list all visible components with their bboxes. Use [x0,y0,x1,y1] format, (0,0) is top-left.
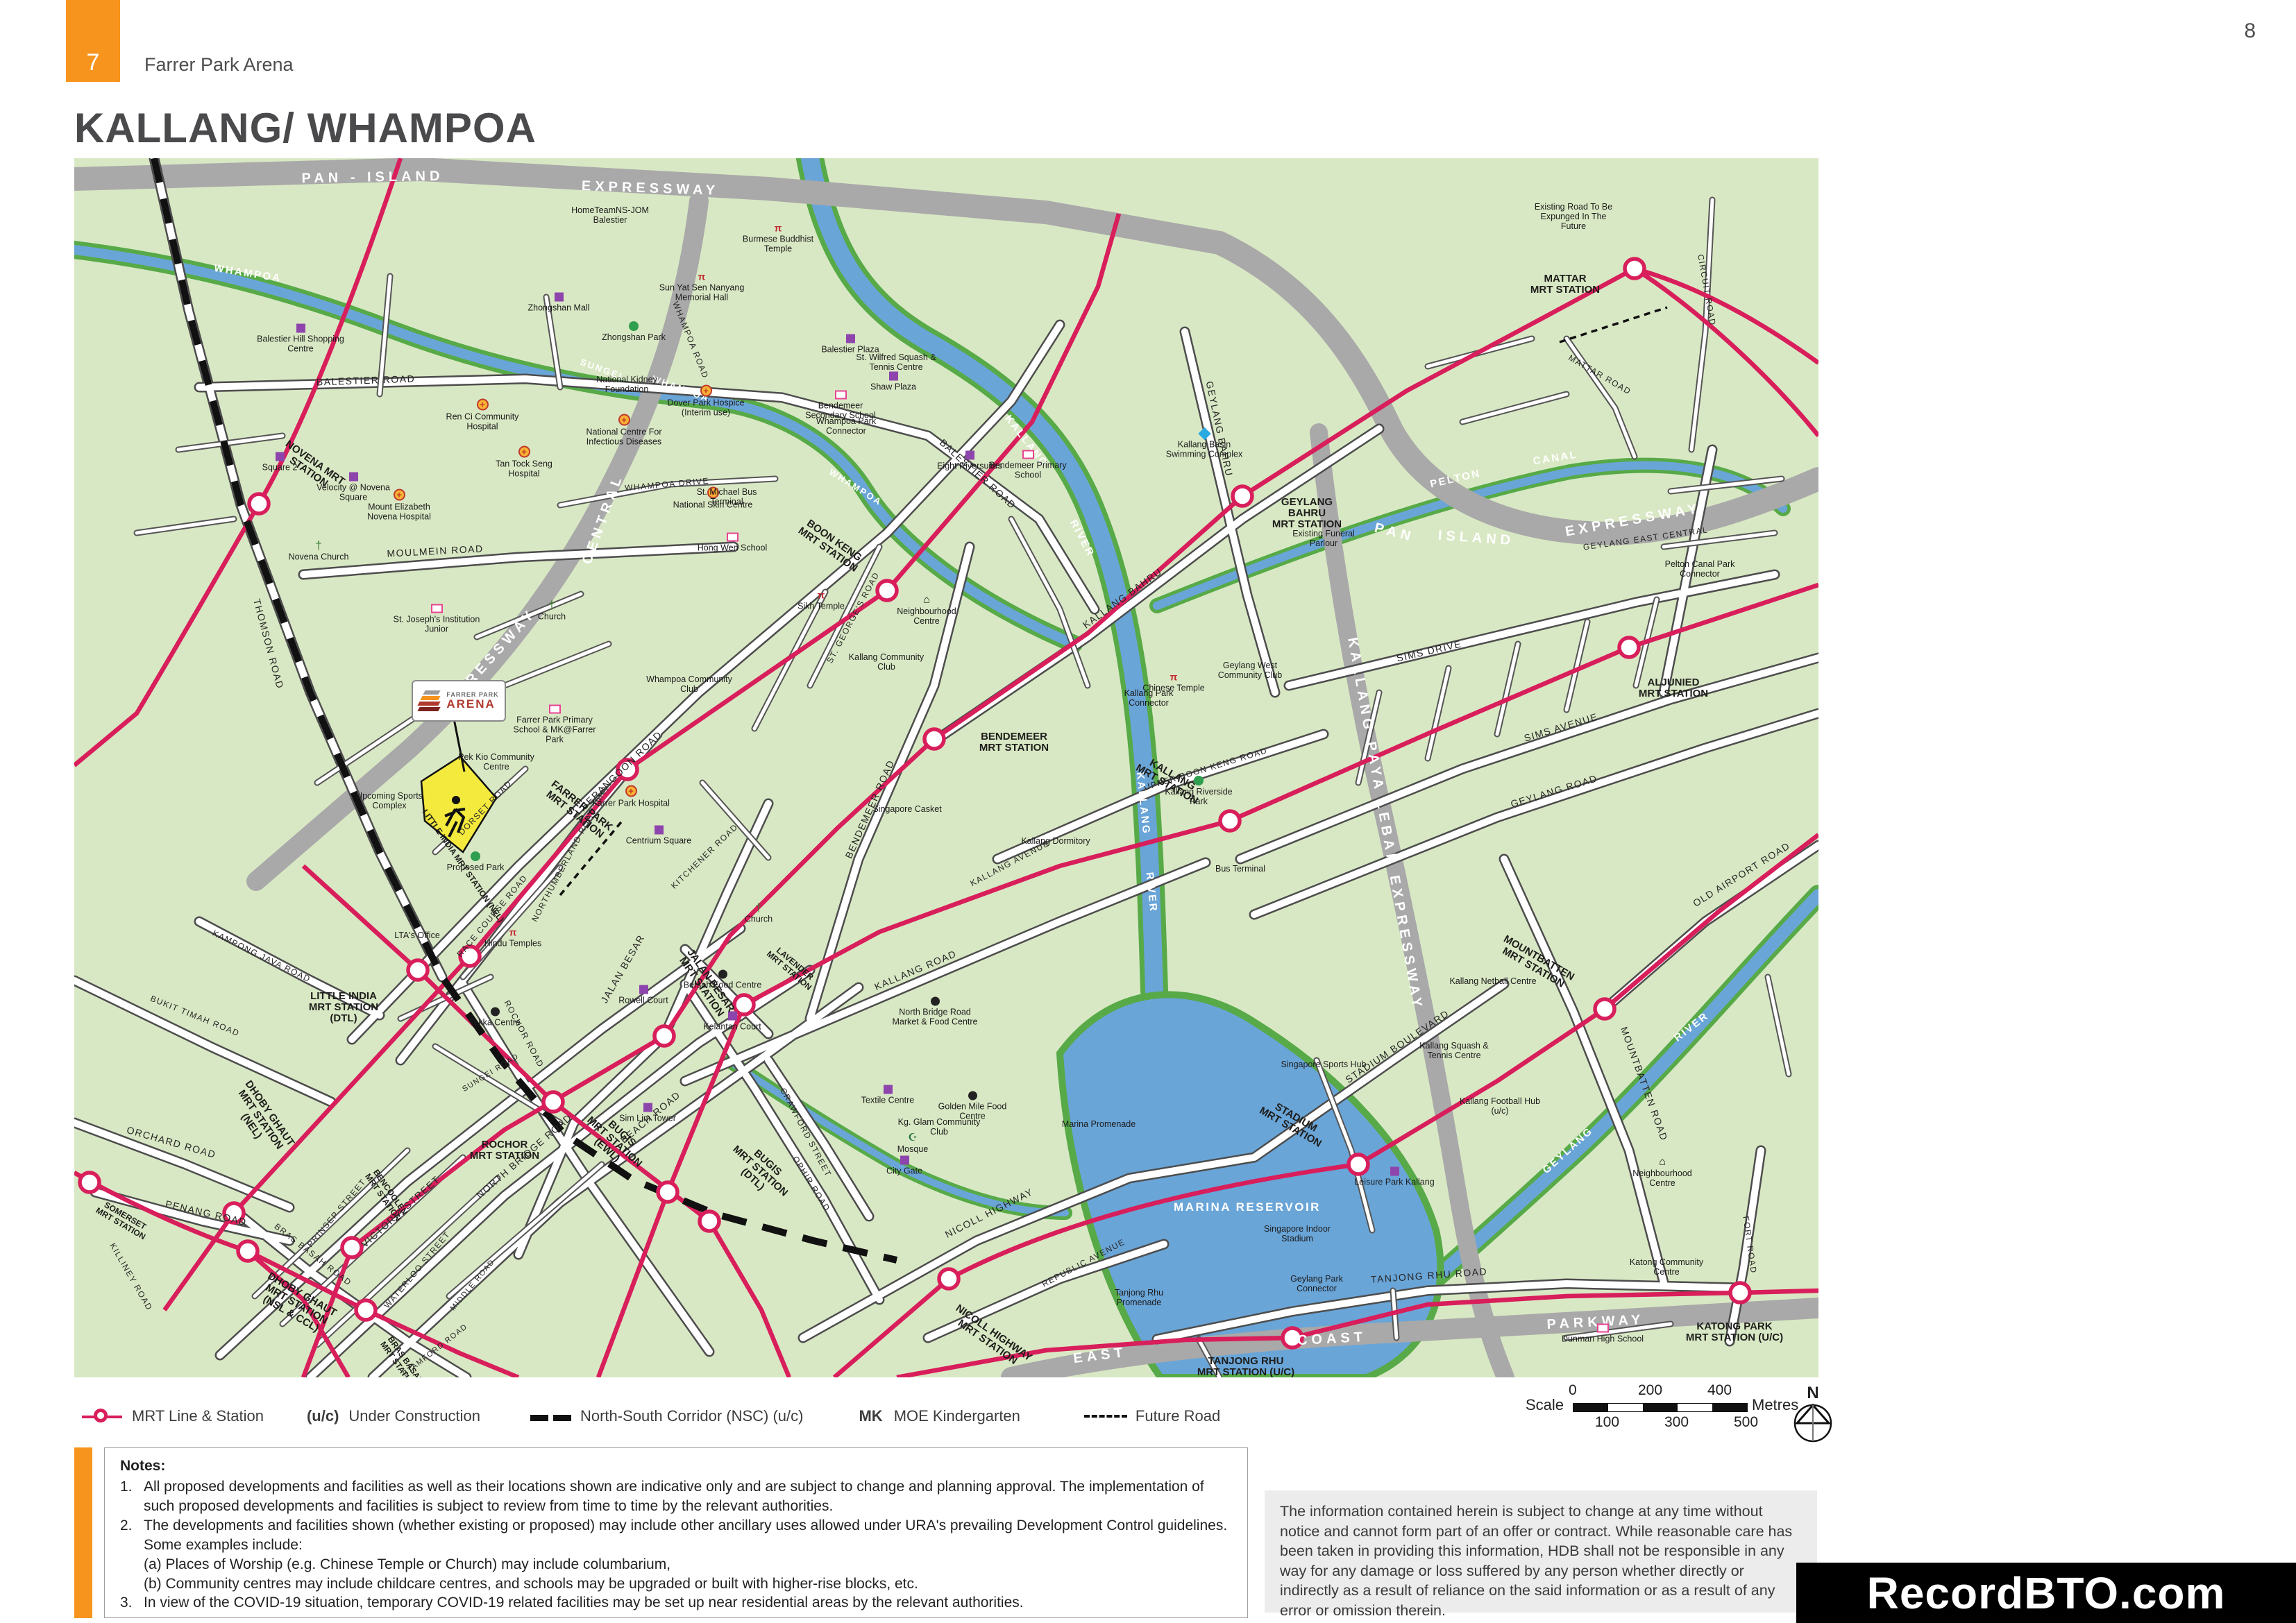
landmark: +Ren Ci Community Hospital [439,399,526,432]
landmark: †Church [715,903,802,924]
landmark: Tanjong Rhu Promenade [1095,1288,1183,1307]
landmark-label: Sim Lim Tower [619,1114,676,1123]
road-label: THOMSON ROAD [251,597,286,690]
landmark-label: National Kidney Foundation [583,375,670,394]
mrt-station-label-nicoll-highway: NICOLL HIGHWAYMRT STATION [947,1303,1034,1373]
landmark-label: Kallang Squash & Tennis Centre [1410,1041,1498,1060]
building-icon [643,1103,652,1112]
landmark: Kallang Dormitory [1012,836,1099,846]
road-label: CRAWFORD STREET [778,1086,834,1178]
landmark-label: Leisure Park Kallang [1354,1178,1434,1187]
landmark-label: Sikh Temple [797,602,845,611]
landmark: Kallang Park Connector [1105,688,1192,708]
landmark-label: Singapore Sports Hub [1281,1060,1367,1069]
temple-icon: π [509,928,517,937]
landmark-label: Kallang Netball Centre [1449,976,1536,986]
water-label: CANAL [1533,449,1579,468]
map-labels-layer: NOVENA MRTSTATIONMATTARMRT STATIONBOON K… [74,158,1818,1377]
landmark-label: Farrer Park Primary School & MK@Farrer P… [511,715,598,745]
landmark: †Novena Church [275,541,362,562]
water-label: RIVER [1067,518,1097,559]
water-label: WHAMPOA [213,262,282,284]
legend-nsc-label: North-South Corridor (NSC) (u/c) [580,1407,804,1425]
church-icon: † [548,600,555,611]
landmark: City Gate [861,1156,948,1176]
landmark-label: Pek Kio Community Centre [453,752,540,772]
landmark: Leisure Park Kallang [1351,1167,1438,1187]
notes-accent-bar [74,1447,92,1618]
landmark: Singapore Indoor Stadium [1253,1224,1341,1243]
landmark-label: Bus Terminal [1215,864,1265,874]
landmark: Tekka Centre [451,1008,539,1028]
landmark: St. Wilfred Squash & Tennis Centre [852,352,940,372]
note-number: 1. [120,1477,144,1516]
landmark: Textile Centre [844,1085,931,1105]
landmark: Farrer Park Primary School & MK@Farrer P… [511,705,598,745]
landmark: St. Michael Bus Terminal [683,487,770,507]
building-icon [555,293,564,302]
landmark: Marina Promenade [1055,1119,1142,1129]
road-label: REPUBLIC AVENUE [1040,1237,1127,1289]
landmark-label: Kallang Basin Swimming Complex [1160,440,1248,459]
water-label: WHAMPOA [827,466,884,507]
note-item: 1.All proposed developments and faciliti… [120,1477,1232,1516]
scale-tick: 100 [1595,1414,1619,1431]
mrt-station-label-mattar: MATTARMRT STATION [1530,273,1600,296]
hospital-icon: + [518,446,530,458]
road-label: SUNGEI ROAD [461,1052,521,1094]
road-label: NICOLL HIGHWAY [943,1186,1035,1240]
water-label: RIVER [1672,1010,1711,1044]
landmark: Whampoa Community Club [645,674,733,694]
landmark-label: Geylang West Community Club [1206,661,1294,680]
road-label: ST. GEORGE'S ROAD [825,570,881,665]
notes-title: Notes: [120,1456,1232,1476]
notes-list: 1.All proposed developments and faciliti… [120,1477,1232,1613]
school-icon [431,604,443,613]
water-label: PELTON [1429,467,1482,490]
road-label: WATERLOO STREET [382,1230,452,1311]
landmark: ⌂Neighbourhood Centre [1619,1157,1706,1188]
north-arrow-icon [1793,1403,1833,1443]
mrt-station-label-dhoby-ghaut-nel: DHOBY GHAUTMRT STATION(NEL) [224,1079,296,1162]
landmark-label: Marina Promenade [1062,1119,1136,1129]
road-label: MOUNTBATTEN ROAD [1619,1026,1670,1143]
road-label: CIRCUIT ROAD [1696,253,1718,326]
scale-tick: 400 [1707,1382,1732,1399]
farrer-park-arena-logo [419,690,442,711]
landmark-label: Kallang Park Connector [1105,688,1192,708]
water-label: GEYLANG [1540,1125,1596,1176]
scale-tick: 200 [1638,1382,1662,1399]
landmark-label: Existing Funeral Parlour [1280,529,1367,548]
landmark-label: Church [538,612,566,622]
landmark-label: National Centre For Infectious Diseases [580,427,668,447]
landmark: Pelton Canal Park Connector [1656,559,1744,579]
farrer-park-arena-callout: FARRER PARKARENA [412,680,506,722]
landmark-label: Dover Park Hospice (Interim use) [662,398,750,418]
food-centre-icon [968,1091,977,1101]
landmark: Kallang Community Club [843,652,930,672]
landmark: Zhongshan Mall [515,293,602,313]
disclaimer-box: The information contained herein is subj… [1265,1490,1817,1613]
road-label: GEYLANG ROAD [1509,772,1598,809]
landmark-label: Kallang Football Hub (u/c) [1456,1096,1544,1116]
landmark: Balestier Plaza [807,334,894,355]
mrt-station-label-rochor: ROCHORMRT STATION [470,1139,539,1162]
scale-bar-segments [1573,1403,1748,1412]
landmark: +National Centre For Infectious Diseases [580,414,668,447]
legend-mk-label: MOE Kindergarten [894,1407,1020,1425]
expressway-label: ISLAND [1437,528,1515,550]
road-label: KILLINEY ROAD [108,1241,154,1312]
watermark: RecordBTO.com [1796,1563,2296,1623]
road-label: OLD AIRPORT ROAD [1691,840,1792,908]
note-number: 3. [120,1593,144,1613]
nsc-legend-icon [530,1407,576,1425]
north-arrow: N [1791,1384,1835,1447]
landmark: Kallang Squash & Tennis Centre [1410,1041,1498,1060]
future-road-legend-icon [1084,1415,1127,1418]
landmark: Shaw Plaza [850,372,937,392]
road-label: ORCHARD ROAD [126,1124,217,1160]
note-item: 2.The developments and facilities shown … [120,1516,1232,1594]
landmark-label: Hindu Temples [484,939,541,949]
mrt-station-label-bras-basah: BRAS BASAHMRT STATION [378,1335,425,1377]
landmark: +Tan Tock Seng Hospital [480,446,568,479]
landmark: Centrium Square [615,826,702,846]
section-badge: 7 [66,0,120,82]
temple-icon: π [1170,673,1178,682]
landmark-label: Singapore Casket [872,804,941,814]
road-label: BUKIT TIMAH ROAD [149,994,242,1039]
mosque-icon: ☪ [908,1133,917,1143]
mrt-station-label-little-india-dtl: LITTLE INDIAMRT STATION(DTL) [309,991,378,1024]
scale-tick: 0 [1569,1382,1577,1399]
scale-tick: 500 [1734,1414,1758,1431]
mrt-station-label-katong-park: KATONG PARKMRT STATION (U/C) [1686,1321,1783,1343]
landmark: +Dover Park Hospice (Interim use) [662,385,750,418]
water-label: MARINA RESERVOIR [1174,1200,1321,1214]
landmark: Kelantan Court [689,1012,776,1032]
road-label: BALESTIER ROAD [316,373,416,388]
landmark-label: Tan Tock Seng Hospital [480,459,568,479]
landmark-label: St. Wilfred Squash & Tennis Centre [852,352,940,372]
landmark: πHindu Temples [469,928,557,949]
landmark-label: Zhongshan Park [602,332,666,342]
mrt-station-label-bendemeer: BENDEMEERMRT STATION [979,731,1049,754]
food-centre-icon [718,970,727,979]
landmark: Pek Kio Community Centre [453,752,540,772]
mrt-station-legend-icon [82,1408,122,1425]
mrt-station-label-bencoolen: BENCOOLENMRT STATION [363,1167,410,1223]
page-number: 8 [2244,19,2256,43]
landmark-label: Neighbourhood Centre [883,606,970,626]
landmark: Kallang Netball Centre [1449,976,1537,986]
landmark: Sim Lim Tower [604,1103,691,1123]
landmark: Hong Wen School [689,533,776,553]
building-icon [655,826,664,835]
note-item: 3.In view of the COVID-19 situation, tem… [120,1593,1232,1613]
landmark-label: Katong Community Centre [1623,1257,1710,1277]
mrt-station-label-dhoby-ghaut-nsl-ccl: DHOBY GHAUTMRT STATION(NSL & CCL) [255,1271,339,1338]
water-label: RIVER [1143,872,1159,913]
kallang-whampoa-map[interactable]: NOVENA MRTSTATIONMATTARMRT STATIONBOON K… [74,158,1818,1377]
page-title: KALLANG/ WHAMPOA [74,104,537,152]
note-text: In view of the COVID-19 situation, tempo… [144,1593,1024,1613]
notes-box: Notes: 1.All proposed developments and f… [104,1447,1248,1618]
hospital-icon: + [618,414,630,426]
park-icon [471,851,480,861]
landmark-label: Tekka Centre [469,1018,521,1028]
church-icon: † [315,541,321,551]
landmark-label: Novena Church [289,552,349,562]
landmark: National Kidney Foundation [583,375,670,394]
landmark: Kallang Football Hub (u/c) [1456,1096,1544,1116]
school-icon [1597,1324,1609,1333]
landmark: Geylang West Community Club [1206,661,1294,680]
site-label: Upcoming Sports Complex [353,791,425,811]
landmark: πSun Yat Sen Nanyang Memorial Hall [658,273,745,303]
landmark-label: Neighbourhood Centre [1619,1169,1706,1188]
mrt-station-label-bugis-dtl: BUGISMRT STATION(DTL) [723,1136,797,1207]
arena-brand-bottom: ARENA [446,698,498,710]
landmark: +Farrer Park Hospital [587,785,675,808]
expressway-label: KALLANG-PAYA LEBAR EXPRESSWAY [1344,636,1426,1012]
road-label: DORSET ROAD [457,779,514,838]
road-label: KALLANG BAHRU [1081,566,1164,630]
school-icon [835,391,847,400]
landmark: St. Joseph's Institution Junior [393,604,480,634]
landmark: Whampoa Park Connector [802,416,890,436]
landmark-label: Ren Ci Community Hospital [439,412,526,432]
north-label: N [1791,1384,1835,1403]
landmark-label: LTA's Office [394,931,440,940]
note-number: 2. [120,1516,144,1594]
temple-icon: π [818,591,825,600]
scale-tick: 300 [1664,1414,1689,1431]
landmark: Kallang Basin Swimming Complex [1160,430,1248,459]
road-label: KALLANG ROAD [872,948,958,992]
landmark-label: Tanjong Rhu Promenade [1095,1288,1183,1307]
scale-label: Scale [1526,1396,1564,1414]
landmark-label: Centrium Square [626,836,692,846]
landmark-label: St. Michael Bus Terminal [683,487,770,507]
landmark-label: Burmese Buddhist Temple [734,235,822,254]
hospital-icon: + [625,785,637,797]
landmark: Zhongshan Park [590,321,677,342]
landmark: Existing Road To Be Expunged In The Futu… [1530,202,1617,231]
park-icon [629,321,639,331]
mrt-station-label-stadium: STADIUMMRT STATION [1258,1096,1329,1150]
landmark: πBurmese Buddhist Temple [734,224,822,254]
school-icon [1022,450,1034,459]
expressway-label: EAST [1072,1345,1128,1367]
landmark: Katong Community Centre [1623,1257,1710,1277]
landmark-label: North Bridge Road Market & Food Centre [891,1008,979,1027]
hospital-icon: + [477,399,489,411]
landmark-label: Sun Yat Sen Nanyang Memorial Hall [658,283,745,303]
swimming-icon [1198,427,1210,440]
road-label: MOULMEIN ROAD [387,543,484,559]
landmark: Proposed Park [432,851,519,872]
landmark: HomeTeamNS-JOM Balestier [566,205,654,225]
temple-icon: π [775,224,782,233]
landmark: Singapore Casket [863,804,951,814]
scale-bar: Scale 0200400 100300500 Metres N [1526,1379,1817,1456]
road-label: MATTAR ROAD [1567,352,1632,396]
landmark-label: Hong Wen School [698,543,768,553]
landmark-label: City Gate [886,1166,922,1176]
landmark: Balestier Hill Shopping Centre [257,324,344,354]
landmark: ☪Mosque [869,1133,956,1154]
school-icon [727,533,738,542]
school-icon [549,705,561,714]
landmark-label: Farrer Park Hospital [592,799,670,808]
landmark: North Bridge Road Market & Food Centre [891,997,979,1027]
landmark: πSikh Temple [777,591,865,611]
landmark-label: Existing Road To Be Expunged In The Futu… [1530,202,1617,231]
section-badge-number: 7 [87,49,100,76]
landmark-label: Geylang Park Connector [1273,1274,1360,1293]
landmark: Existing Funeral Parlour [1280,529,1367,548]
landmark-label: Zhongshan Mall [528,303,590,313]
landmark: Geylang Park Connector [1273,1274,1360,1293]
mrt-station-label-aljunied: ALJUNIEDMRT STATION [1639,677,1708,699]
building-icon [965,451,974,460]
legend-future-label: Future Road [1136,1407,1220,1425]
legend-mrt-label: MRT Line & Station [132,1407,264,1425]
expressway-label: EXPRESSWAY [582,178,720,199]
expressway-label: CENTRAL [580,471,627,566]
legend-uc-abbr: (u/c) [307,1407,339,1425]
landmark-label: Bendemeer Primary School [984,461,1072,480]
hospital-icon: + [700,385,712,397]
map-legend: MRT Line & Station (u/c) Under Construct… [82,1407,1220,1425]
mrt-station-label-tanjong-rhu: TANJONG RHUMRT STATION (U/C) [1197,1356,1294,1377]
food-centre-icon [931,997,940,1006]
mrt-station-label-geylang-bahru: GEYLANGBAHRUMRT STATION [1272,497,1342,530]
building-icon [349,473,358,482]
expressway-label: PAN - ISLAND [301,169,444,187]
temple-icon: π [698,273,706,282]
landmark-label: Church [745,915,773,924]
road-label: KAMPONG JAVA ROAD [211,928,312,985]
legend-mk-abbr: MK [859,1407,882,1425]
landmark-label: Textile Centre [861,1096,914,1105]
road-label: MIDDLE ROAD [449,1258,497,1313]
road-label: FORT ROAD [1741,1216,1759,1275]
landmark-label: Pelton Canal Park Connector [1656,559,1744,579]
landmark-label: Kallang Community Club [843,652,930,672]
landmark-label: Rowell Court [618,996,668,1005]
building-icon [889,372,898,381]
landmark: Singapore Sports Hub [1280,1060,1367,1069]
building-icon [296,324,305,333]
expressway-label: COAST [1297,1329,1367,1349]
landmark: †Church [508,600,596,622]
landmark-label: HomeTeamNS-JOM Balestier [566,205,654,225]
landmark-label: Whampoa Park Connector [802,416,890,436]
food-centre-icon [491,1008,500,1017]
neighbourhood-centre-icon: ⌂ [923,595,930,605]
building-icon [900,1156,909,1165]
landmark-label: Kallang Dormitory [1021,836,1090,846]
landmark-label: Whampoa Community Club [645,674,733,694]
landmark-label: Singapore Indoor Stadium [1253,1224,1341,1243]
landmark: LTA's Office [373,931,461,940]
building-icon [639,985,648,994]
road-label: PRINSEP STREET [305,1177,369,1249]
landmark-label: Balestier Hill Shopping Centre [257,334,344,354]
landmark: Dunman High School [1559,1324,1646,1344]
legend-uc-label: Under Construction [348,1407,480,1425]
brochure-page: { "header":{"badge":"7","badge_label":"F… [0,0,2296,1623]
road-label: PENANG ROAD [164,1198,248,1228]
landmark-label: St. Joseph's Institution Junior [393,615,480,634]
mrt-station-label-boon-keng: BOON KENGMRT STATION [796,516,866,575]
landmark-label: Kelantan Court [703,1022,761,1032]
expressway-label: PAN [1373,520,1417,546]
building-icon [884,1085,893,1094]
church-icon: † [755,903,761,913]
road-label: SIMS DRIVE [1395,638,1462,663]
landmark: Bendemeer Primary School [984,450,1072,480]
building-icon [846,334,855,343]
landmark-label: Mount Elizabeth Novena Hospital [355,502,443,522]
landmark: Rowell Court [600,985,687,1005]
note-text: All proposed developments and facilities… [144,1477,1232,1516]
landmark: ⌂Neighbourhood Centre [883,595,970,626]
neighbourhood-centre-icon: ⌂ [1659,1157,1666,1167]
landmark: Bus Terminal [1197,864,1284,874]
mrt-station-label-lavender: LAVENDERMRT STATION [765,942,819,992]
road-label: TANJONG RHU ROAD [1370,1266,1487,1285]
mrt-station-label-somerset: SOMERSETMRT STATION [94,1198,151,1241]
section-badge-label: Farrer Park Arena [144,54,294,76]
landmark-label: Mosque [897,1144,928,1154]
landmark-label: Dunman High School [1562,1334,1644,1344]
building-icon [1390,1167,1399,1176]
road-label: SIMS AVENUE [1523,711,1599,744]
note-text: The developments and facilities shown (w… [144,1516,1232,1594]
